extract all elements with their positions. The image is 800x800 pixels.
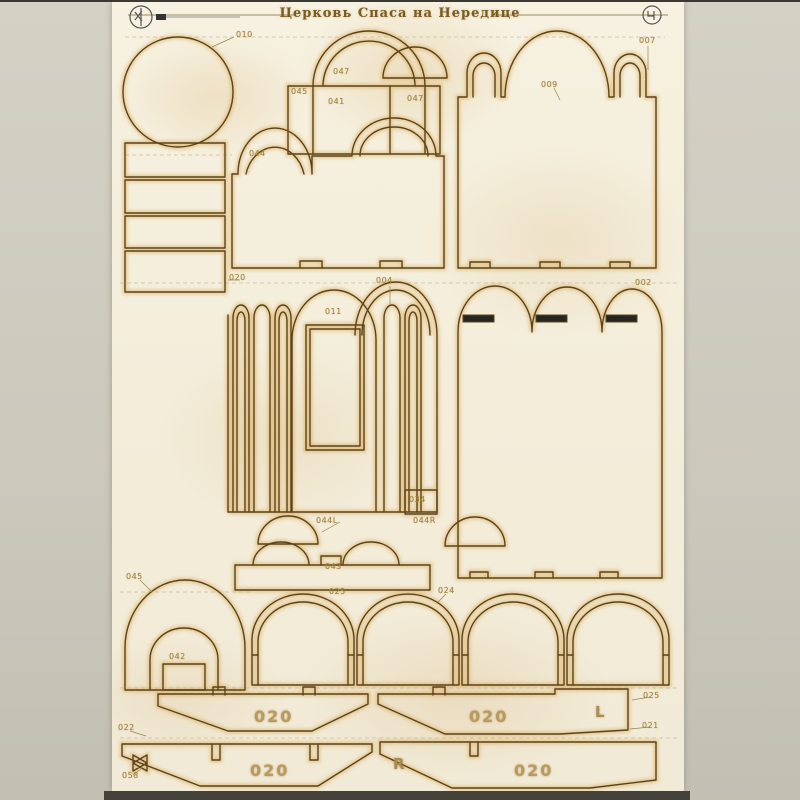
plate-number-engraving: 020: [254, 707, 293, 726]
part-label: 002: [635, 278, 652, 287]
part-label: 024: [438, 586, 455, 595]
part-label: 011: [325, 307, 342, 316]
part-label: 025: [329, 587, 346, 596]
part-label: 010: [236, 30, 253, 39]
part-label: 045: [126, 572, 143, 581]
part-label: 007: [639, 36, 656, 45]
laser-cut-pattern-svg: [0, 0, 800, 800]
part-label: 045: [291, 87, 308, 96]
part-label: 025: [643, 691, 660, 700]
part-label: 020: [229, 273, 246, 282]
part-label: 041: [328, 97, 345, 106]
part-label: 047: [407, 94, 424, 103]
scanned-sheet-page: Церковь Спаса на Нередице 010 047 045 04…: [0, 0, 800, 800]
burn-glow-layer: [122, 31, 669, 788]
plate-number-engraving: 020: [469, 707, 508, 726]
part-label: 009: [541, 80, 558, 89]
part-label: 004: [376, 276, 393, 285]
part-label: 044R: [413, 516, 436, 525]
part-label: 022: [118, 723, 135, 732]
plate-number-engraving: 020: [514, 761, 553, 780]
slot-cuts: [463, 315, 637, 322]
left-side-mark: L: [595, 703, 605, 721]
part-label: 042: [169, 652, 186, 661]
right-side-mark: R: [393, 755, 405, 773]
part-label: 047: [333, 67, 350, 76]
plate-number-engraving: 020: [250, 761, 289, 780]
part-label: 034: [409, 495, 426, 504]
part-label: 044L: [316, 516, 338, 525]
part-label: 043: [325, 562, 342, 571]
scan-edge-bottom: [104, 791, 690, 800]
sheet-title: Церковь Спаса на Нередице: [0, 6, 800, 21]
part-label: 021: [642, 721, 659, 730]
part-label: 058: [122, 771, 139, 780]
part-label: 044: [249, 149, 266, 158]
